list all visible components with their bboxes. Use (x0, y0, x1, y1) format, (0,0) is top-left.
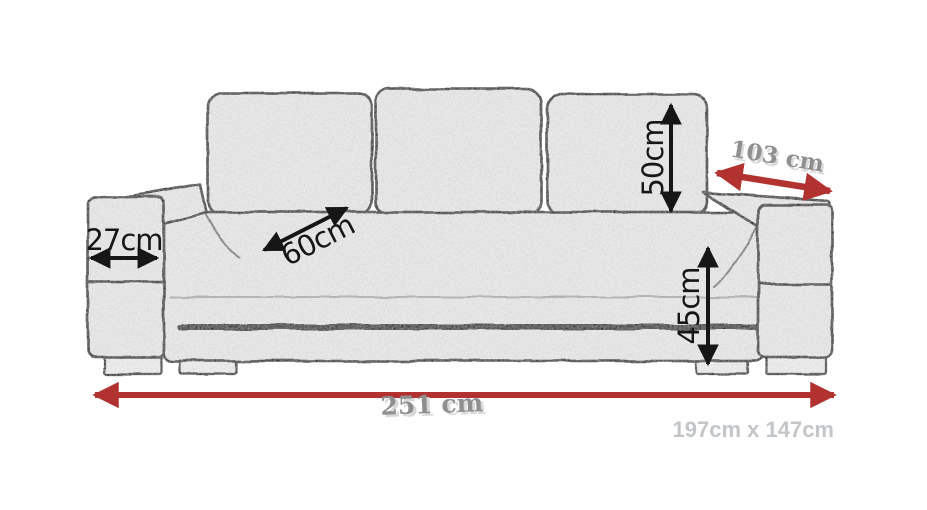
sleeping-area-label: 197cm x 147cm (673, 417, 834, 442)
sofa-diagram-canvas: 27cm 60cm 50cm 45cm 103 cm 103 cm 251 cm… (0, 0, 927, 510)
right-armrest-front (758, 205, 832, 357)
left-armrest-front (88, 197, 164, 357)
back-cushion-middle (376, 89, 541, 215)
armrest-width-label: 27cm (85, 223, 162, 257)
back-cushion-left (208, 93, 372, 215)
backrest-height-label: 50cm (636, 119, 670, 196)
sofa-foot-right-outer (766, 356, 826, 374)
sofa-dimension-diagram: 27cm 60cm 50cm 45cm 103 cm 103 cm 251 cm… (0, 0, 927, 510)
back-cushion-right (547, 94, 707, 215)
sofa-width-label: 251 cm (380, 388, 484, 421)
seat-height-label: 45cm (672, 267, 706, 344)
sofa-illustration (88, 89, 832, 374)
sofa-foot-left-outer (104, 356, 161, 374)
